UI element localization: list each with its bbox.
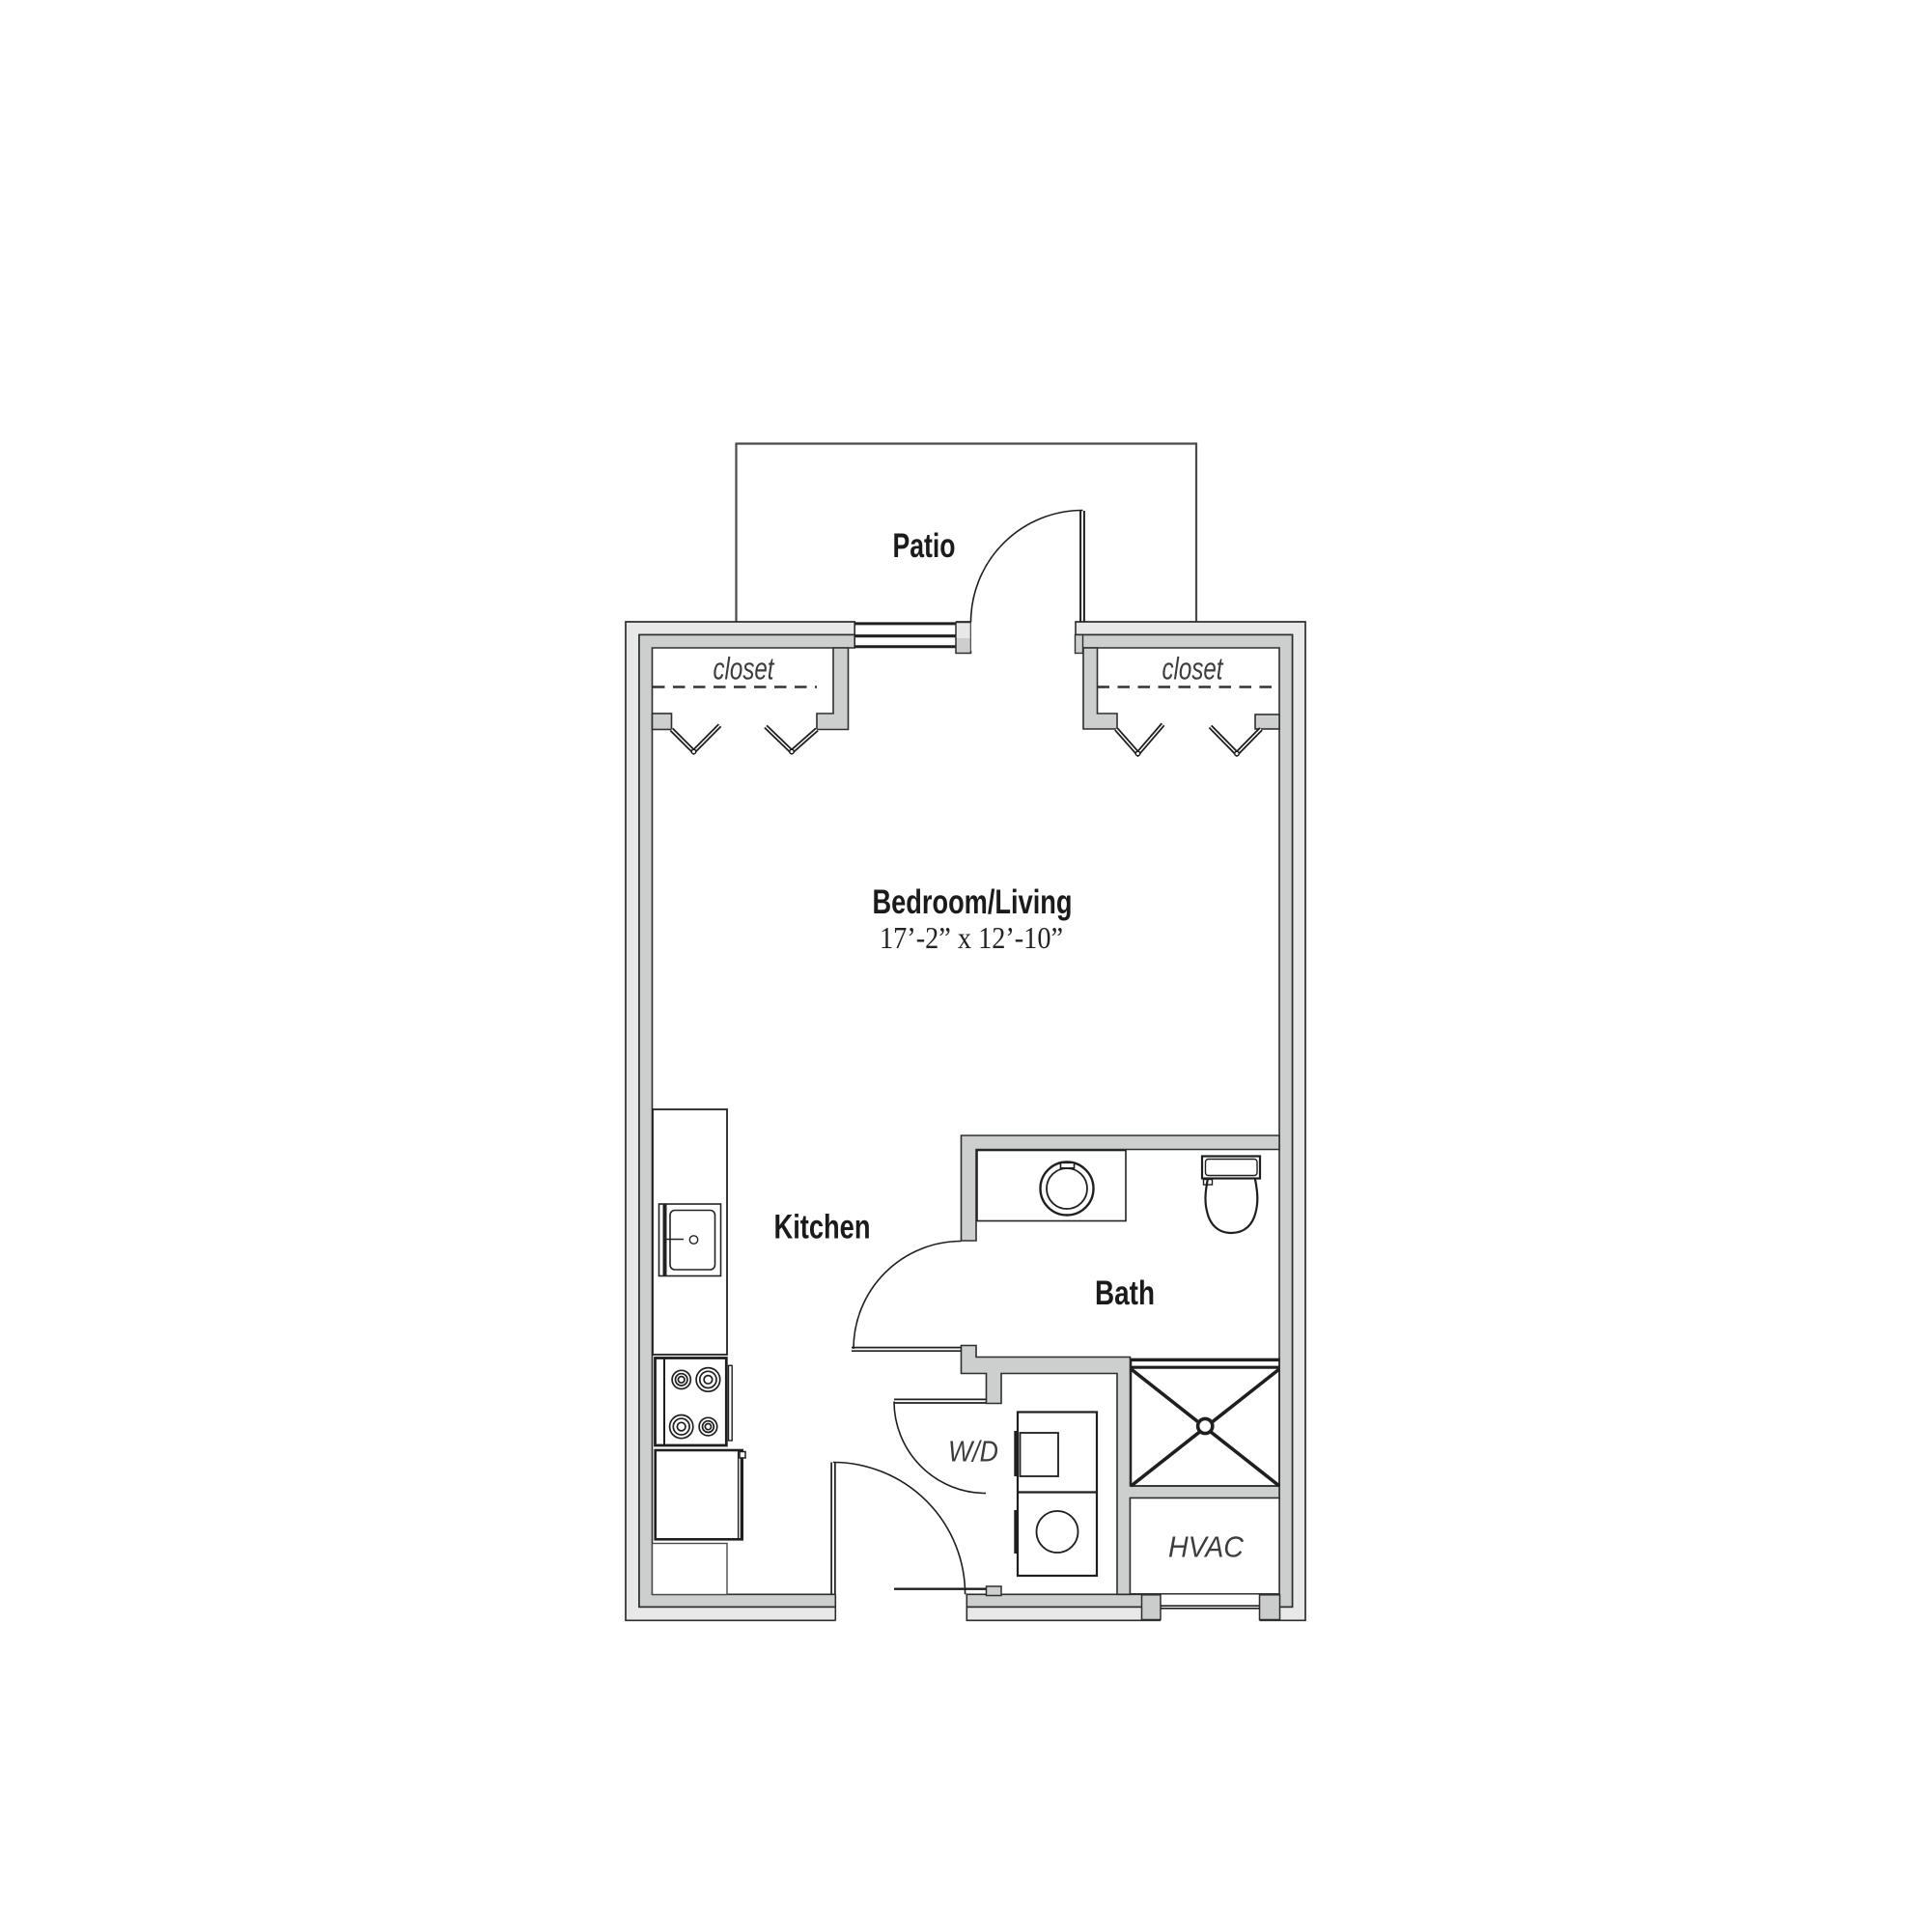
svg-text:Kitchen: Kitchen	[774, 1209, 871, 1246]
svg-text:closet: closet	[1162, 652, 1224, 686]
svg-text:W/D: W/D	[948, 1435, 998, 1469]
svg-text:Patio: Patio	[893, 527, 956, 565]
svg-text:HVAC: HVAC	[1168, 1530, 1245, 1564]
svg-text:Bedroom/Living: Bedroom/Living	[873, 883, 1073, 921]
svg-text:Bath: Bath	[1095, 1274, 1155, 1312]
svg-text:17’-2” x 12’-10”: 17’-2” x 12’-10”	[880, 920, 1063, 955]
svg-text:closet: closet	[714, 652, 775, 686]
